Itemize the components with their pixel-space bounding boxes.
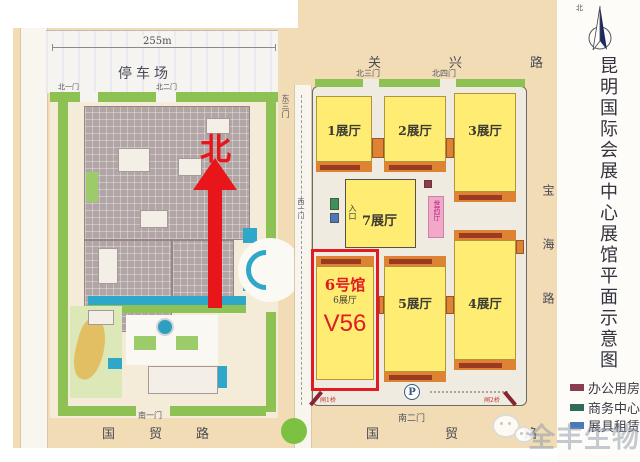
office-block (424, 180, 432, 188)
fountain (156, 318, 174, 336)
wechat-eye (508, 422, 511, 425)
office-swatch (570, 384, 584, 391)
road-baohai: 宝海路 (540, 184, 557, 346)
watermark-text: 全丰生物 (528, 416, 640, 455)
garden-pavilion (88, 310, 114, 325)
hall-3: 3展厅 (454, 93, 516, 192)
gate-gap-north4 (440, 79, 456, 87)
south-annex (148, 366, 218, 394)
hall-1: 1展厅 (316, 96, 372, 162)
road-guomao-left: 国贸路 (102, 423, 243, 442)
garden-pond (108, 358, 122, 369)
hall-5: 5展厅 (384, 266, 446, 372)
page-title: 昆明国际会展中心展馆平面示意图 (594, 56, 620, 386)
parking-label: 停车场 (118, 63, 172, 83)
gate-north2-label: 北二门 (156, 82, 177, 92)
booth-number: V56 (316, 310, 374, 338)
green-strip-right-lower (266, 312, 276, 412)
north-arrow-shaft (208, 188, 222, 308)
hall-2-service-strip (384, 162, 446, 172)
gate-north1-label: 北一门 (58, 82, 79, 92)
hall-6-label: 6展厅 (316, 293, 374, 306)
hall-6-name: 6号馆 (316, 274, 374, 295)
business-center-block (330, 198, 339, 210)
hall-2: 2展厅 (384, 96, 446, 162)
gate-north4-label: 北四门 (432, 68, 456, 79)
hall-5-strip-bottom (384, 372, 446, 382)
plaza-lawn-1 (134, 336, 156, 350)
legend-business-label: 商务中心 (588, 398, 640, 417)
green-strip-right-upper (266, 102, 276, 250)
garden-patch-1 (86, 172, 98, 202)
parking-note-placeholder (430, 391, 508, 393)
business-swatch (570, 404, 584, 411)
hall-1-service-strip (316, 162, 372, 172)
hall-4: 4展厅 (454, 240, 516, 360)
middle-road-centerline (301, 95, 302, 405)
hall-3-label: 3展厅 (468, 120, 502, 139)
hall-7-label: 7展厅 (362, 210, 397, 229)
hall-5-strip-top (384, 256, 446, 266)
gate-east3-label: 东三门 (280, 94, 291, 118)
legend-office-label: 办公用房 (588, 378, 640, 397)
hall-1-label: 1展厅 (327, 120, 361, 139)
green-strip-left (58, 102, 68, 414)
equipment-rental-block (330, 213, 339, 223)
gate-north3-label: 北三门 (356, 68, 380, 79)
hall-3-service-strip (454, 192, 516, 202)
hall-4-strip-top (454, 230, 516, 240)
west-road (20, 28, 48, 448)
courtyard-1 (118, 148, 150, 172)
dimension-tick-left (52, 44, 53, 51)
legend-item-business: 商务中心 (570, 398, 640, 417)
gate-south1-label: 南一门 (138, 410, 162, 421)
connector-block (379, 296, 384, 314)
page-left-margin (0, 0, 13, 462)
dimension-line (52, 47, 276, 48)
connector-block (516, 240, 524, 254)
courtyard-3 (98, 248, 118, 284)
north-arrow-head (193, 158, 237, 190)
hall-7-entrance-label: 入口 (347, 204, 358, 220)
legend-item-office: 办公用房 (570, 378, 640, 397)
dimension-label: 255m (140, 36, 175, 47)
hall-5-label: 5展厅 (398, 293, 432, 312)
hall-4-strip-bottom (454, 360, 516, 370)
south-annex-teal (218, 366, 227, 388)
bridge-right-label: 闸2桥 (484, 395, 500, 404)
connector-block (446, 296, 454, 314)
parking-icon: P (404, 384, 420, 400)
roundabout-green (281, 418, 307, 444)
wechat-eye (500, 422, 503, 425)
bridge-left-label: 闸1桥 (320, 395, 336, 404)
gate-gap-north3 (363, 79, 379, 87)
connector-block (446, 138, 454, 158)
middle-road (294, 85, 312, 448)
page-corner (0, 0, 298, 28)
green-strip-north-right (315, 79, 525, 87)
wechat-eye (520, 432, 523, 435)
site-map-screenshot: 255m 停车场 北一门 北二门 北 南一门 国贸路 东三门 西一门 (0, 0, 640, 462)
dimension-tick-right (275, 44, 276, 51)
plaza-lawn-2 (176, 336, 198, 350)
courtyard-5 (140, 210, 168, 228)
gate-gap-1 (80, 92, 98, 102)
hall-2-label: 2展厅 (398, 120, 432, 139)
connector-block (372, 138, 384, 158)
colonnade-teal (88, 296, 246, 305)
pink-hall-label: 世药厅 (432, 200, 442, 221)
compass-icon (580, 4, 620, 56)
gate-west1-label: 西一门 (296, 198, 306, 219)
gate-gap-2 (156, 92, 176, 102)
hall-4-label: 4展厅 (468, 293, 502, 312)
